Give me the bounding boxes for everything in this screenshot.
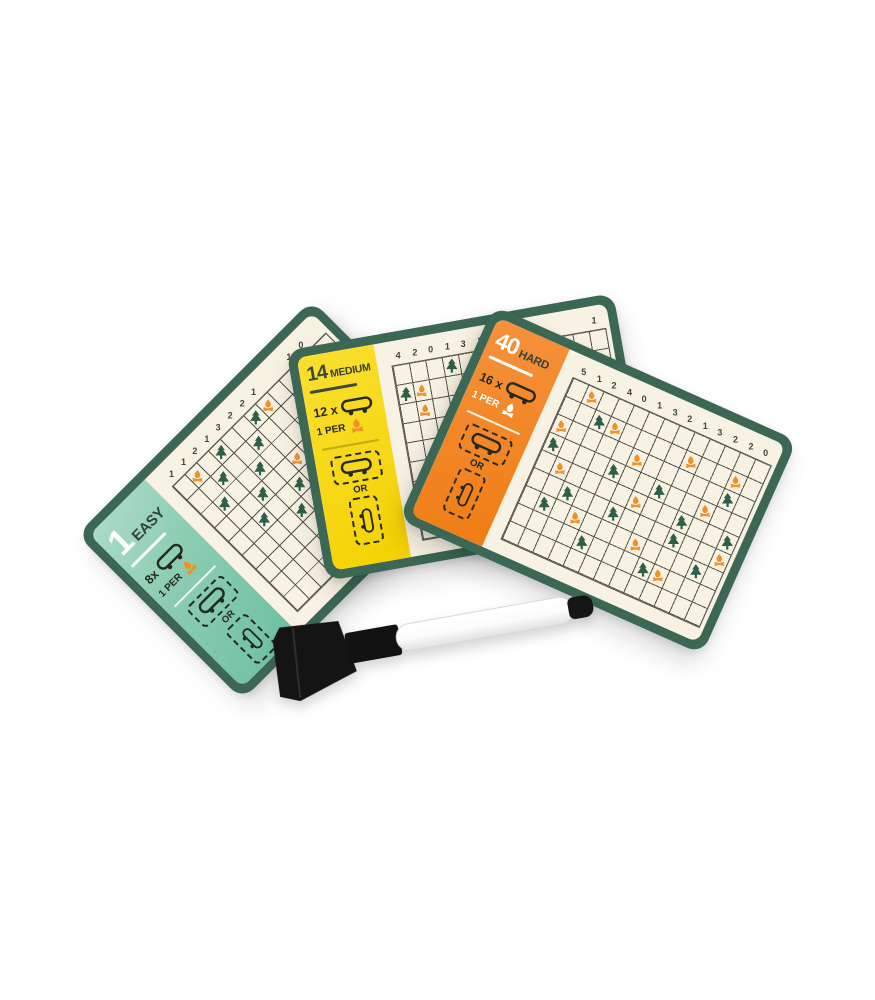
marker-cap-wedge [268, 616, 360, 705]
van-horizontal-box [185, 574, 241, 630]
camper-van-icon [355, 507, 376, 535]
row-clue: 5 [612, 326, 625, 346]
column-clue: 4 [390, 347, 407, 364]
campfire-icon [563, 505, 586, 530]
band-divider [322, 439, 379, 451]
camper-van-icon [339, 457, 373, 479]
row-clue: 6 [771, 469, 784, 489]
campfire-icon [679, 450, 702, 475]
marker-cap-collar [344, 624, 403, 664]
row-clue: 6 [739, 540, 752, 560]
pine-tree-icon [246, 430, 272, 456]
column-clue: 0 [422, 341, 439, 358]
row-clue [334, 322, 347, 342]
pine-tree-icon [556, 481, 579, 506]
pine-tree-icon [533, 492, 556, 517]
difficulty-title: 40 HARD [492, 329, 562, 377]
difficulty-name: MEDIUM [329, 362, 371, 379]
difficulty-title: 1 EASY [101, 489, 173, 561]
difficulty-title: 14 MEDIUM [305, 354, 373, 385]
campfire-icon [581, 385, 604, 410]
pine-tree-icon [252, 507, 278, 533]
column-clue: 2 [406, 344, 423, 361]
row-clue: 2 [747, 522, 760, 542]
row-clue: 1 [708, 611, 721, 631]
pine-tree-icon [685, 559, 708, 584]
pine-tree-icon [602, 459, 625, 484]
pine-tree-icon [248, 455, 274, 481]
difficulty-number: 14 [305, 362, 328, 385]
row-clue: 7 [763, 487, 776, 507]
campfire-icon [624, 532, 647, 557]
campfire-icon [549, 456, 572, 481]
campfire-icon [499, 399, 519, 420]
pine-tree-icon [289, 497, 315, 523]
pine-tree-icon [570, 530, 593, 555]
column-clue: 1 [439, 339, 456, 356]
row-clue: 7 [716, 594, 729, 614]
pine-tree-icon [602, 501, 625, 526]
camper-van-icon [451, 479, 477, 509]
column-clue: 3 [455, 336, 472, 353]
van-vertical-box [347, 494, 384, 546]
per-label: 1 PER [316, 422, 346, 438]
pine-tree-icon [648, 479, 671, 504]
pine-tree-icon [212, 491, 238, 517]
column-clue: 1 [586, 313, 603, 330]
product-photo-scene: 1 EASY 8x 1 PER OR [0, 0, 875, 1000]
camper-count-label: 12 x [312, 403, 338, 421]
campfire-icon [625, 448, 648, 473]
row-clue: 3 [723, 576, 736, 596]
campfire-icon [416, 399, 436, 421]
marker-end-plug [566, 594, 594, 620]
row-clue: 3 [755, 505, 768, 525]
campfire-icon [625, 490, 648, 515]
pine-tree-icon [210, 465, 236, 491]
pine-tree-icon [250, 481, 276, 507]
camper-van-icon [468, 430, 504, 459]
van-vertical-box [441, 466, 487, 522]
pine-tree-icon [396, 383, 416, 405]
campfire-icon [348, 416, 366, 434]
row-clue: 3 [731, 558, 744, 578]
camper-van-icon [236, 624, 266, 654]
campfire-icon [693, 499, 716, 524]
pine-tree-icon [442, 355, 462, 377]
column-clue [570, 316, 587, 333]
marker-barrel [394, 594, 576, 653]
